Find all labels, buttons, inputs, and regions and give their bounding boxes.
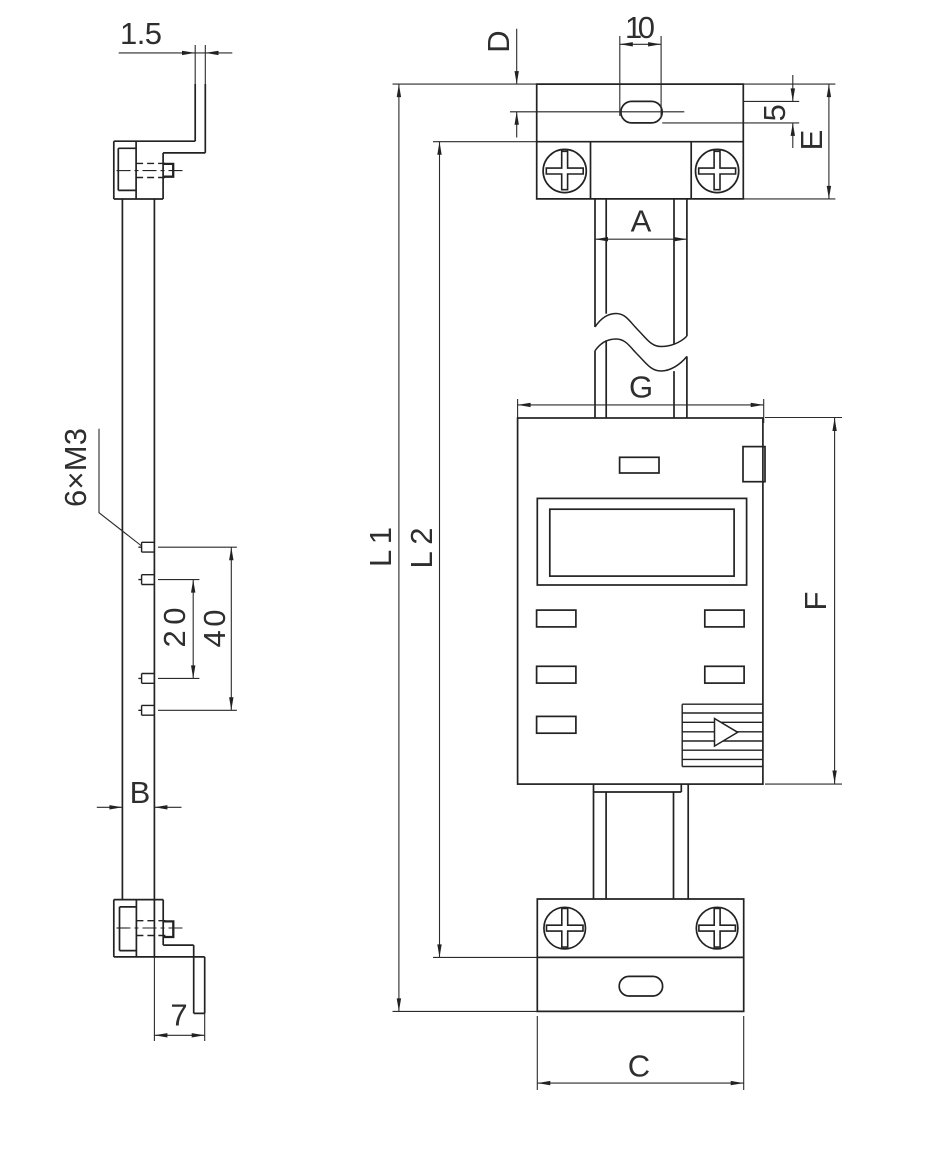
svg-text:E: E (794, 130, 829, 151)
svg-text:B: B (130, 775, 151, 810)
svg-text:D: D (481, 30, 516, 52)
svg-text:7: 7 (170, 998, 187, 1033)
svg-text:10: 10 (625, 10, 655, 45)
svg-text:A: A (631, 203, 652, 238)
svg-text:G: G (629, 369, 653, 404)
svg-text:C: C (628, 1048, 650, 1083)
svg-text:6×M3: 6×M3 (58, 428, 93, 507)
svg-text:5: 5 (757, 104, 792, 121)
svg-text:F: F (798, 592, 833, 611)
svg-text:1.5: 1.5 (120, 16, 162, 51)
